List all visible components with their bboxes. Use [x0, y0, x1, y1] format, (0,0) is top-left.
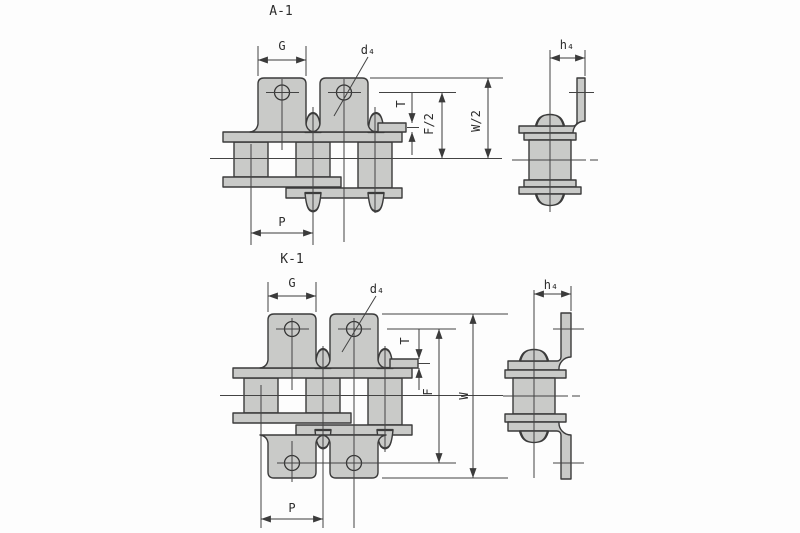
k1-dim-label-g: G — [288, 276, 295, 290]
a1-section: A-1 — [210, 4, 598, 245]
attachment-plate-edge — [390, 359, 418, 368]
pin-head — [368, 193, 384, 211]
a1-dim-label-d4: d₄ — [361, 43, 375, 57]
k1-dim-label-h4: h₄ — [544, 278, 558, 292]
bottom-link-plate — [223, 177, 341, 187]
a1-dim-label-w-half: W/2 — [469, 110, 483, 132]
a1-front-view — [210, 78, 502, 245]
a1-dim-label-g: G — [278, 39, 285, 53]
a1-dim-label-f-half: F/2 — [422, 113, 436, 135]
a1-side-view: h₄ — [512, 38, 598, 212]
a1-dim-label-t: T — [394, 100, 408, 107]
chain-attachment-diagram: A-1 — [0, 0, 800, 533]
k1-title: K-1 — [280, 252, 303, 267]
k1-dim-label-p: P — [288, 501, 295, 515]
side-link-plate — [505, 414, 566, 422]
k1-section: K-1 — [220, 252, 584, 528]
k1-side-view: h₄ — [503, 278, 584, 479]
k1-dim-label-d4: d₄ — [370, 282, 384, 296]
k1-dim-label-w: W — [457, 392, 471, 400]
a1-title: A-1 — [269, 4, 292, 19]
k1-dim-label-t: T — [398, 337, 412, 344]
a1-dim-label-h4: h₄ — [560, 38, 574, 52]
bottom-link-plate — [233, 413, 351, 423]
technical-drawing-page: A-1 — [0, 0, 800, 533]
a1-dim-label-p: P — [278, 215, 285, 229]
k1-dim-label-f: F — [421, 388, 435, 395]
side-link-plate — [505, 370, 566, 378]
k1-front-view — [220, 314, 503, 528]
attachment-plate-edge — [378, 123, 406, 132]
